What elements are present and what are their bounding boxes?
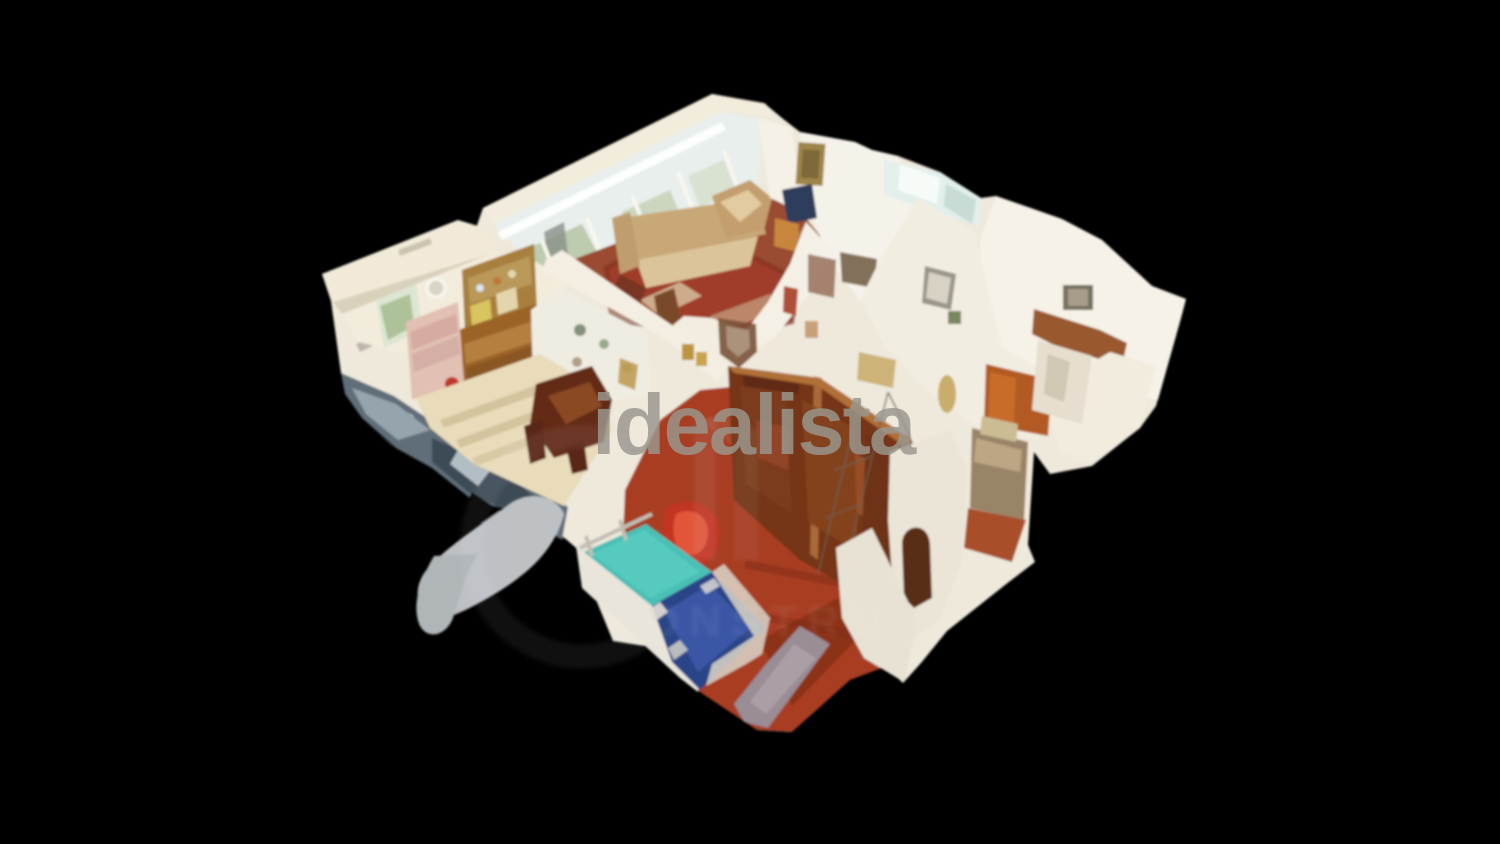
svg-text:idealista: idealista — [592, 378, 917, 473]
svg-text:ONSTRU: ONSTRU — [645, 597, 891, 646]
